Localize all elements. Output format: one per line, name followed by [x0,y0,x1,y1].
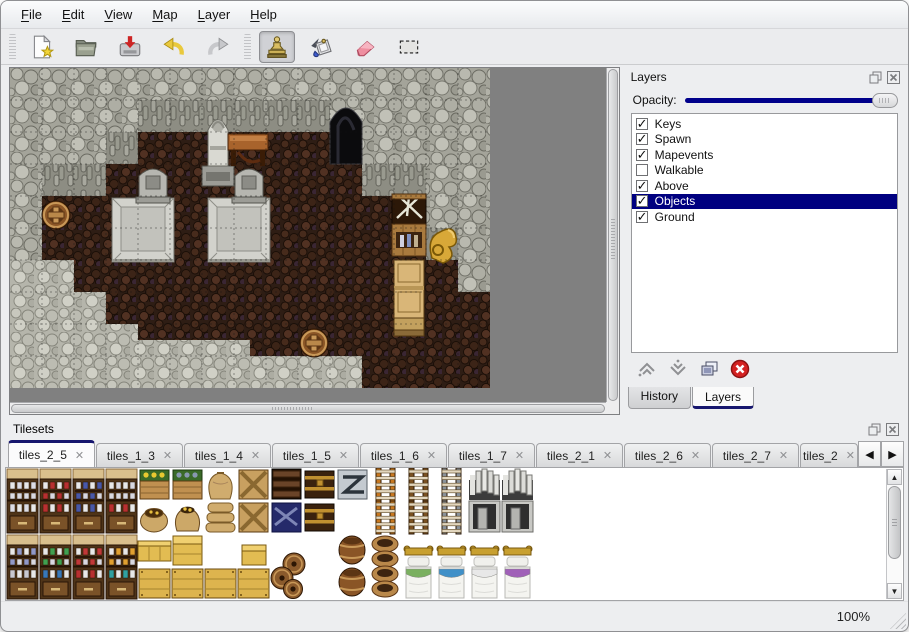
tileset-tab-tiles_1_5[interactable]: tiles_1_5✕ [272,443,359,467]
close-tab-icon[interactable]: ✕ [603,449,612,462]
lower-layer-button[interactable] [666,358,690,382]
tab-history[interactable]: History [628,387,691,409]
tileset-tab-label: tiles_1_6 [371,449,419,463]
close-tab-icon[interactable]: ✕ [339,449,348,462]
layer-list: KeysSpawnMapeventsWalkableAboveObjectsGr… [631,113,898,353]
tilesets-panel: Tilesets tiles_2_5✕tiles_1_3✕tiles_1_4✕t… [5,419,904,601]
raise-layer-icon [636,358,658,383]
layer-row-walkable[interactable]: Walkable [632,163,897,178]
close-panel-icon[interactable] [886,423,900,436]
opacity-label: Opacity: [633,93,677,107]
layers-panel-title: Layers [631,70,865,84]
dock-tabs: HistoryLayers [625,387,904,415]
tileset-palette[interactable] [6,468,534,600]
close-tab-icon[interactable]: ✕ [163,449,172,462]
close-tab-icon[interactable]: ✕ [75,449,84,462]
scrollbar-corner [606,402,619,414]
layer-buttons [625,353,904,387]
menu-file[interactable]: File [13,4,50,25]
close-tab-icon[interactable]: ✕ [251,449,260,462]
duplicate-layer-button[interactable] [697,358,721,382]
tileset-tab-tiles_2_7[interactable]: tiles_2_7✕ [712,443,799,467]
opacity-slider[interactable] [685,92,898,108]
open-icon [73,34,99,60]
toolbar-grip[interactable] [9,34,16,60]
select-tool-button[interactable] [391,31,427,63]
tileset-tab-tiles_2_1[interactable]: tiles_2_1✕ [536,443,623,467]
layer-visibility-checkbox[interactable] [636,180,648,192]
tileset-tab-tiles_2[interactable]: tiles_2✕ [800,443,858,467]
zoom-level: 100% [837,609,870,624]
close-tab-icon[interactable]: ✕ [779,449,788,462]
redo-button[interactable] [200,31,236,63]
scroll-down-icon[interactable]: ▼ [887,583,902,599]
delete-layer-button[interactable] [728,358,752,382]
eraser-tool-button[interactable] [347,31,383,63]
map-horizontal-scrollbar[interactable] [10,402,606,414]
tileset-tab-tiles_1_3[interactable]: tiles_1_3✕ [96,443,183,467]
layer-name: Keys [655,117,682,131]
tilesets-panel-title: Tilesets [13,422,864,436]
lower-layer-icon [667,358,689,383]
save-button[interactable] [112,31,148,63]
tileset-tab-bar: tiles_2_5✕tiles_1_3✕tiles_1_4✕tiles_1_5✕… [5,439,904,467]
menu-view[interactable]: View [96,4,140,25]
layer-name: Above [655,179,689,193]
tileset-tab-label: tiles_2 [803,449,838,463]
raise-layer-button[interactable] [635,358,659,382]
close-panel-icon[interactable] [887,71,901,84]
scroll-tabs-right-icon[interactable]: ▶ [881,441,904,467]
layer-row-ground[interactable]: Ground [632,209,897,224]
layer-name: Objects [655,194,696,208]
layer-row-above[interactable]: Above [632,178,897,193]
main-area: Layers Opacity: KeysSpawnMapeventsWalkab… [1,65,908,415]
redo-icon [205,34,231,60]
scrollbar-thumb[interactable] [608,69,618,401]
layer-row-spawn[interactable]: Spawn [632,132,897,147]
menu-layer[interactable]: Layer [190,4,239,25]
tileset-tab-tiles_1_7[interactable]: tiles_1_7✕ [448,443,535,467]
menu-help[interactable]: Help [242,4,285,25]
close-tab-icon[interactable]: ✕ [427,449,436,462]
tileset-tab-tiles_2_6[interactable]: tiles_2_6✕ [624,443,711,467]
tileset-tab-tiles_1_6[interactable]: tiles_1_6✕ [360,443,447,467]
map-vertical-scrollbar[interactable] [606,68,619,402]
layer-row-mapevents[interactable]: Mapevents [632,147,897,162]
scrollbar-thumb[interactable] [888,486,901,559]
toolbar [1,29,908,65]
new-icon [29,34,55,60]
fill-tool-button[interactable] [303,31,339,63]
float-panel-icon[interactable] [868,423,882,436]
stamp-icon [264,34,290,60]
undo-button[interactable] [156,31,192,63]
tileset-tab-label: tiles_2_6 [635,449,683,463]
layer-visibility-checkbox[interactable] [636,149,648,161]
layer-visibility-checkbox[interactable] [636,133,648,145]
tileset-tab-label: tiles_1_7 [459,449,507,463]
layers-panel: Layers Opacity: KeysSpawnMapeventsWalkab… [625,67,904,415]
layer-visibility-checkbox[interactable] [636,195,648,207]
save-icon [117,34,143,60]
layer-name: Walkable [655,163,704,177]
fill-icon [308,34,334,60]
select-icon [396,34,422,60]
layer-visibility-checkbox[interactable] [636,164,648,176]
stamp-tool-button[interactable] [259,31,295,63]
tileset-tab-label: tiles_2_7 [723,449,771,463]
float-panel-icon[interactable] [869,71,883,84]
tileset-tab-label: tiles_1_4 [195,449,243,463]
eraser-icon [352,34,378,60]
menu-map[interactable]: Map [144,4,185,25]
status-bar: 100% [1,601,908,631]
map-canvas[interactable] [10,68,606,402]
layer-row-keys[interactable]: Keys [632,116,897,131]
layer-row-objects[interactable]: Objects [632,194,897,209]
scrollbar-thumb[interactable] [11,404,605,413]
resize-grip[interactable] [890,613,906,629]
new-button[interactable] [24,31,60,63]
opacity-slider-handle[interactable] [872,93,898,108]
duplicate-layer-icon [698,358,720,383]
tileset-palette-area: ▲ ▼ [5,467,904,601]
tileset-tab-tiles_1_4[interactable]: tiles_1_4✕ [184,443,271,467]
tileset-tab-label: tiles_1_5 [283,449,331,463]
open-button[interactable] [68,31,104,63]
palette-scrollbar[interactable]: ▲ ▼ [886,469,902,599]
app-window: FileEditViewMapLayerHelp Layers [0,0,909,632]
tab-layers[interactable]: Layers [692,387,754,409]
close-tab-icon[interactable]: ✕ [846,449,855,462]
layer-visibility-checkbox[interactable] [636,211,648,223]
menu-bar: FileEditViewMapLayerHelp [1,1,908,29]
tileset-tab-label: tiles_2_1 [547,449,595,463]
map-view [9,67,620,415]
close-tab-icon[interactable]: ✕ [691,449,700,462]
tileset-tab-tiles_2_5[interactable]: tiles_2_5✕ [8,440,95,467]
close-tab-icon[interactable]: ✕ [515,449,524,462]
delete-layer-icon [729,358,751,383]
scroll-tabs-left-icon[interactable]: ◀ [858,441,881,467]
layer-name: Ground [655,210,695,224]
tileset-tab-label: tiles_2_5 [19,448,67,462]
undo-icon [161,34,187,60]
toolbar-grip[interactable] [244,34,251,60]
opacity-slider-track[interactable] [685,98,894,103]
layer-name: Mapevents [655,148,714,162]
layer-visibility-checkbox[interactable] [636,118,648,130]
menu-edit[interactable]: Edit [54,4,92,25]
layer-name: Spawn [655,132,692,146]
tileset-tab-label: tiles_1_3 [107,449,155,463]
scroll-up-icon[interactable]: ▲ [887,469,902,485]
